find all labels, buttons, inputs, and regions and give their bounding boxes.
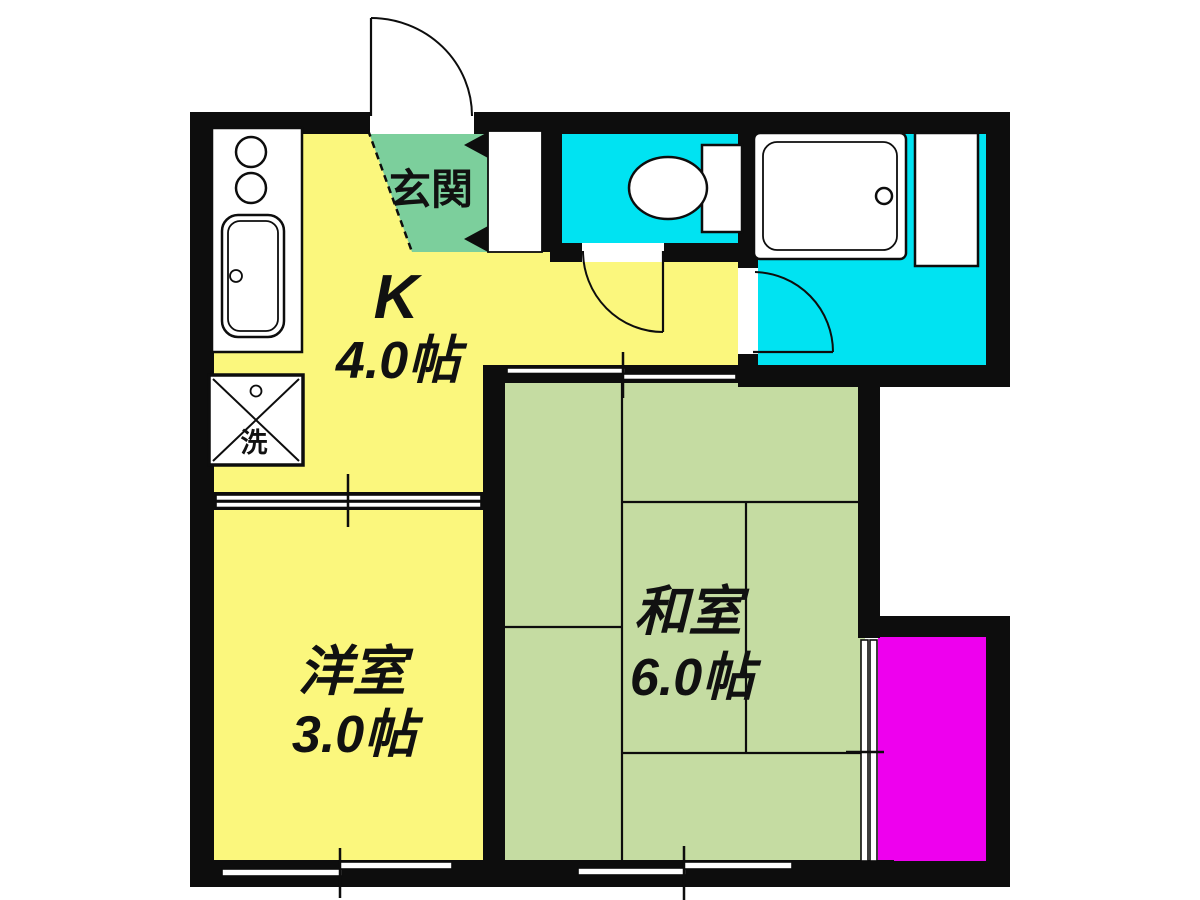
shoe-cabinet bbox=[488, 131, 542, 252]
japanese-room-name-label: 和室 bbox=[634, 582, 750, 642]
japanese-room-window-panel-2 bbox=[684, 862, 792, 869]
wall-japanese-room-right bbox=[858, 365, 880, 638]
balcony-door-panel-1 bbox=[861, 640, 868, 861]
wall-balcony-right bbox=[986, 616, 1010, 887]
entrance-door-swing-arc bbox=[371, 18, 472, 116]
laundry-label: 洗 bbox=[241, 428, 268, 458]
wall-left bbox=[190, 112, 214, 887]
stove-burner-2 bbox=[236, 173, 266, 203]
entrance-doorway bbox=[370, 112, 474, 134]
western-room-size-label: 3.0帖 bbox=[292, 706, 424, 764]
hall-partition-panel-2 bbox=[622, 374, 736, 380]
floorplan-canvas: 玄関 K 4.0帖 洋室 3.0帖 和室 6.0帖 洗 bbox=[0, 0, 1200, 900]
wall-top bbox=[190, 112, 1010, 134]
sink-faucet bbox=[230, 270, 242, 282]
stove-burner-1 bbox=[236, 137, 266, 167]
wall-right-upper bbox=[986, 112, 1010, 387]
toilet-doorway bbox=[582, 243, 664, 262]
western-room-window-panel-1 bbox=[222, 869, 342, 876]
wall-room-divider-vertical bbox=[483, 365, 505, 862]
bathtub-drain bbox=[876, 188, 892, 204]
balcony-floor bbox=[878, 633, 990, 861]
floorplan-drawing: 玄関 K 4.0帖 洋室 3.0帖 和室 6.0帖 洗 bbox=[0, 0, 1200, 900]
wall-balcony-bottom bbox=[876, 861, 1010, 887]
toilet-bowl bbox=[629, 157, 707, 219]
western-room-window-panel-2 bbox=[340, 862, 452, 869]
bathroom-vanity bbox=[915, 133, 978, 266]
balcony-door-panel-2 bbox=[870, 640, 877, 861]
kitchen-name-label: K bbox=[374, 263, 423, 332]
western-room-name-label: 洋室 bbox=[298, 642, 414, 702]
bathroom-doorway bbox=[738, 268, 758, 354]
entrance-label: 玄関 bbox=[389, 166, 473, 213]
kitchen-size-label: 4.0帖 bbox=[335, 332, 468, 390]
japanese-room-size-label: 6.0帖 bbox=[630, 649, 762, 707]
japanese-room-window-panel-1 bbox=[578, 868, 686, 875]
hall-partition-panel-1 bbox=[507, 368, 625, 374]
hallway-floor bbox=[540, 248, 742, 370]
washer-faucet bbox=[251, 386, 262, 397]
